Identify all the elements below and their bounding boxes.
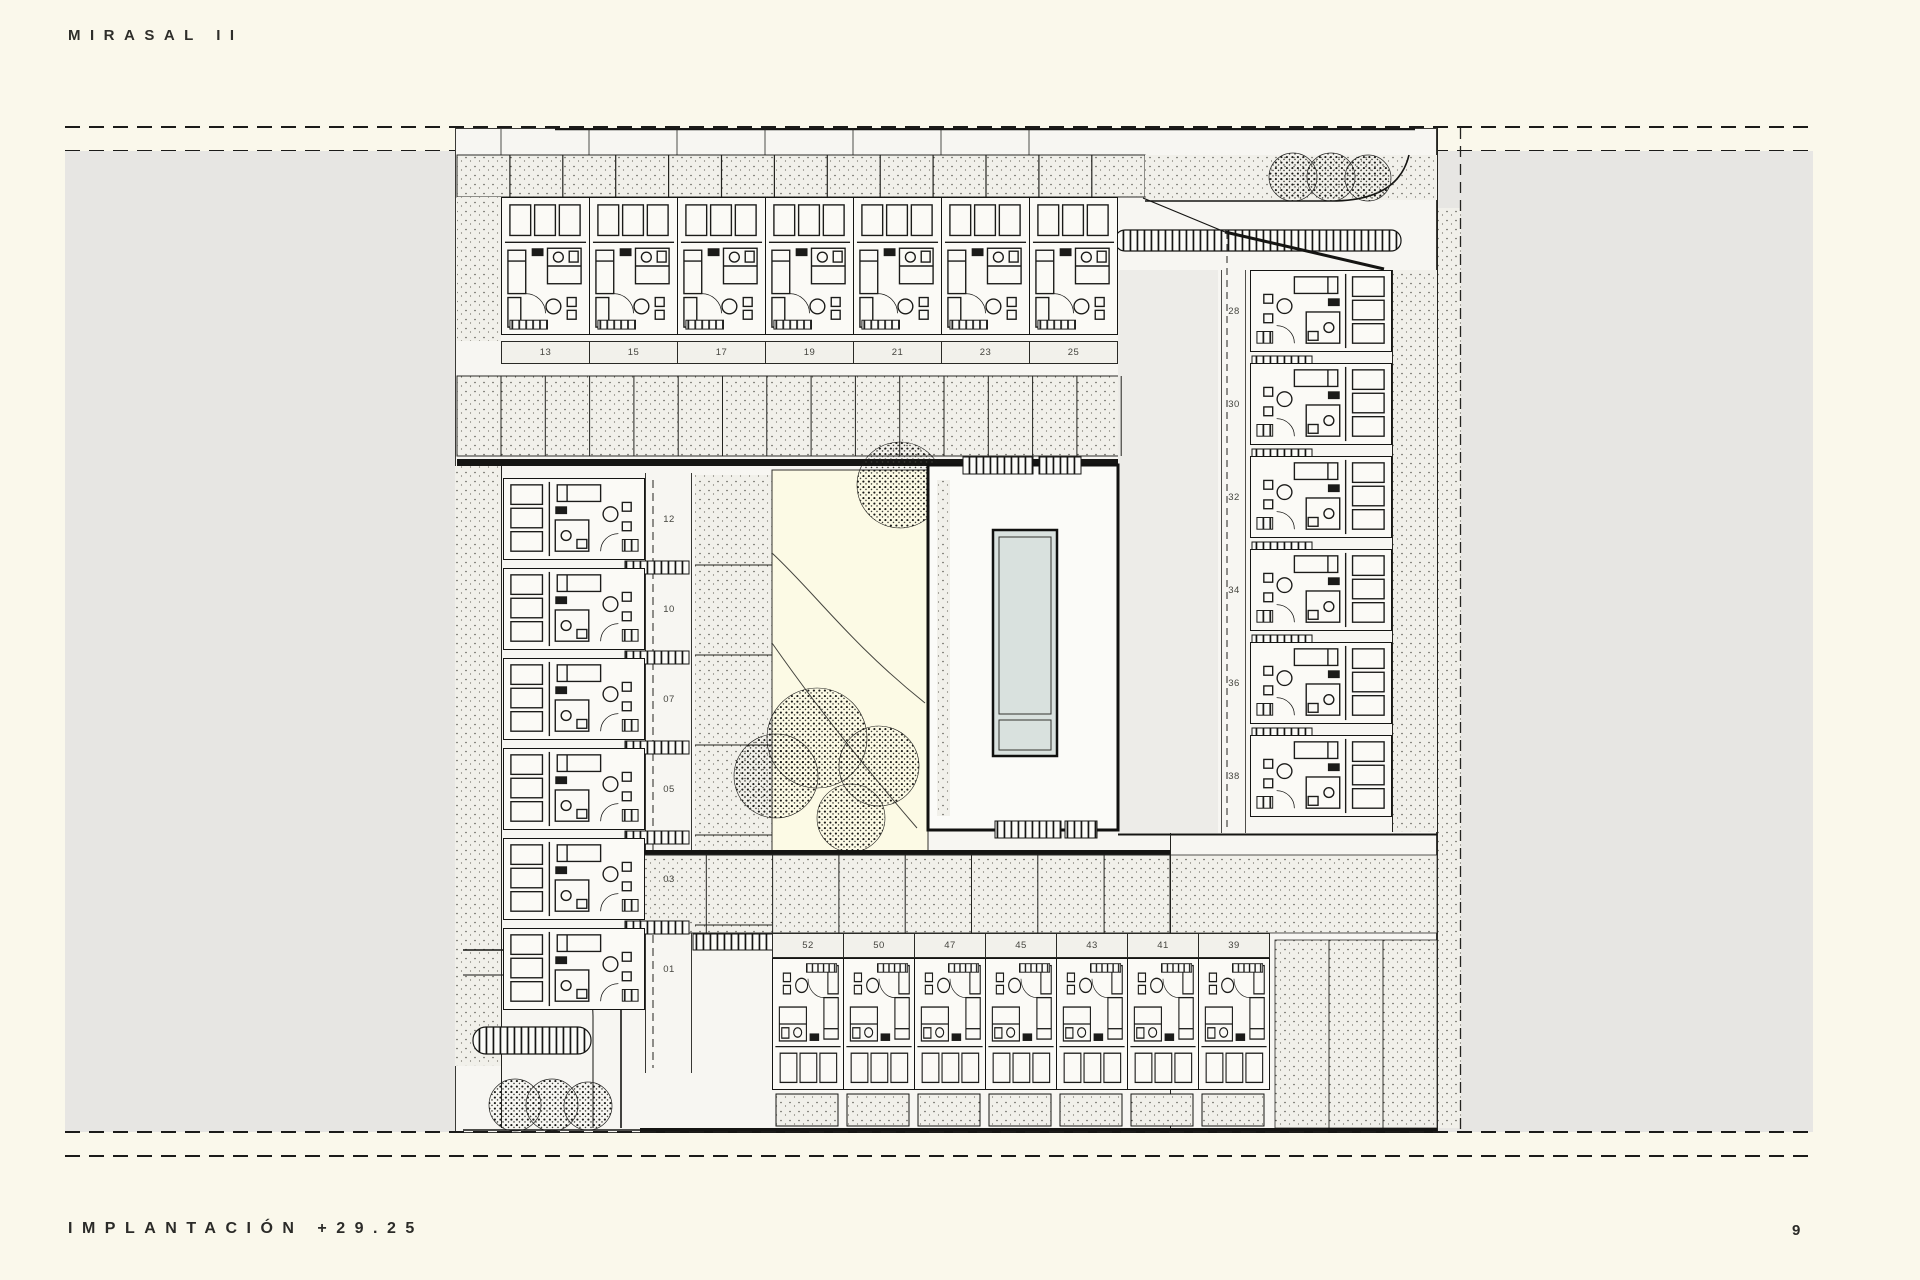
page-number: 9 xyxy=(1792,1222,1801,1239)
unit-cell xyxy=(1250,642,1392,724)
unit-number: 28 xyxy=(1221,270,1247,352)
unit-number: 07 xyxy=(647,658,691,740)
unit-number: 03 xyxy=(647,838,691,920)
unit-cell xyxy=(1250,549,1392,631)
ramp-hatch xyxy=(473,1027,591,1054)
unit-cell xyxy=(1029,197,1118,335)
unit-cell xyxy=(503,928,645,1010)
tree-icon xyxy=(1345,155,1391,201)
swimming-pool xyxy=(993,530,1057,756)
unit-number: 41 xyxy=(1127,933,1199,958)
sheet-title: MIRASAL II xyxy=(68,27,244,44)
drawing-sheet: MIRASAL II xyxy=(0,0,1920,1280)
unit-cell xyxy=(1250,456,1392,538)
unit-number: 25 xyxy=(1029,341,1118,364)
unit-cell xyxy=(503,838,645,920)
unit-cell xyxy=(1250,735,1392,817)
unit-number: 32 xyxy=(1221,456,1247,538)
unit-number: 43 xyxy=(1056,933,1128,958)
border-dashed-line-bottom-outer xyxy=(65,1155,1813,1157)
unit-cell xyxy=(765,197,854,335)
unit-cell xyxy=(589,197,678,335)
north-parking-band xyxy=(457,155,1145,197)
unit-cell xyxy=(503,478,645,560)
tree-icon xyxy=(734,734,818,818)
unit-cell xyxy=(853,197,942,335)
unit-number: 47 xyxy=(914,933,986,958)
unit-number: 19 xyxy=(765,341,854,364)
unit-number: 34 xyxy=(1221,549,1247,631)
unit-cell xyxy=(1198,958,1270,1090)
unit-number: 05 xyxy=(647,748,691,830)
unit-cell xyxy=(985,958,1057,1090)
unit-number: 39 xyxy=(1198,933,1270,958)
unit-number: 38 xyxy=(1221,735,1247,817)
stair-hatch xyxy=(693,934,773,950)
unit-cell xyxy=(1056,958,1128,1090)
tree-icon xyxy=(564,1082,612,1130)
unit-cell xyxy=(1250,270,1392,352)
unit-number: 17 xyxy=(677,341,766,364)
unit-cell xyxy=(503,568,645,650)
east-boundary-strip xyxy=(1437,208,1461,1128)
unit-number: 21 xyxy=(853,341,942,364)
unit-number: 15 xyxy=(589,341,678,364)
unit-number: 23 xyxy=(941,341,1030,364)
unit-cell xyxy=(941,197,1030,335)
unit-cell xyxy=(503,658,645,740)
tree-icon xyxy=(817,784,885,852)
unit-number: 12 xyxy=(647,478,691,560)
border-dashed-line-bottom-inner xyxy=(65,1131,1813,1133)
unit-number: 52 xyxy=(772,933,844,958)
unit-number: 50 xyxy=(843,933,915,958)
unit-cell xyxy=(1250,363,1392,445)
unit-cell xyxy=(1127,958,1199,1090)
stair-hatch xyxy=(1065,821,1097,838)
unit-cell xyxy=(843,958,915,1090)
sheet-footer: IMPLANTACIÓN +29.25 xyxy=(68,1220,424,1238)
stair-hatch xyxy=(995,821,1061,838)
unit-cell xyxy=(677,197,766,335)
unit-cell xyxy=(914,958,986,1090)
stair-hatch xyxy=(1039,457,1081,474)
unit-number: 36 xyxy=(1221,642,1247,724)
unit-cell xyxy=(503,748,645,830)
site-plan: 1315171921232552504745434139121007050301… xyxy=(455,128,1462,1133)
unit-cell xyxy=(501,197,590,335)
unit-cell xyxy=(772,958,844,1090)
unit-number: 01 xyxy=(647,928,691,1010)
unit-number: 13 xyxy=(501,341,590,364)
stair-hatch xyxy=(963,457,1033,474)
unit-number: 45 xyxy=(985,933,1057,958)
north-patio-band xyxy=(457,376,1145,456)
unit-number: 30 xyxy=(1221,363,1247,445)
unit-number: 10 xyxy=(647,568,691,650)
